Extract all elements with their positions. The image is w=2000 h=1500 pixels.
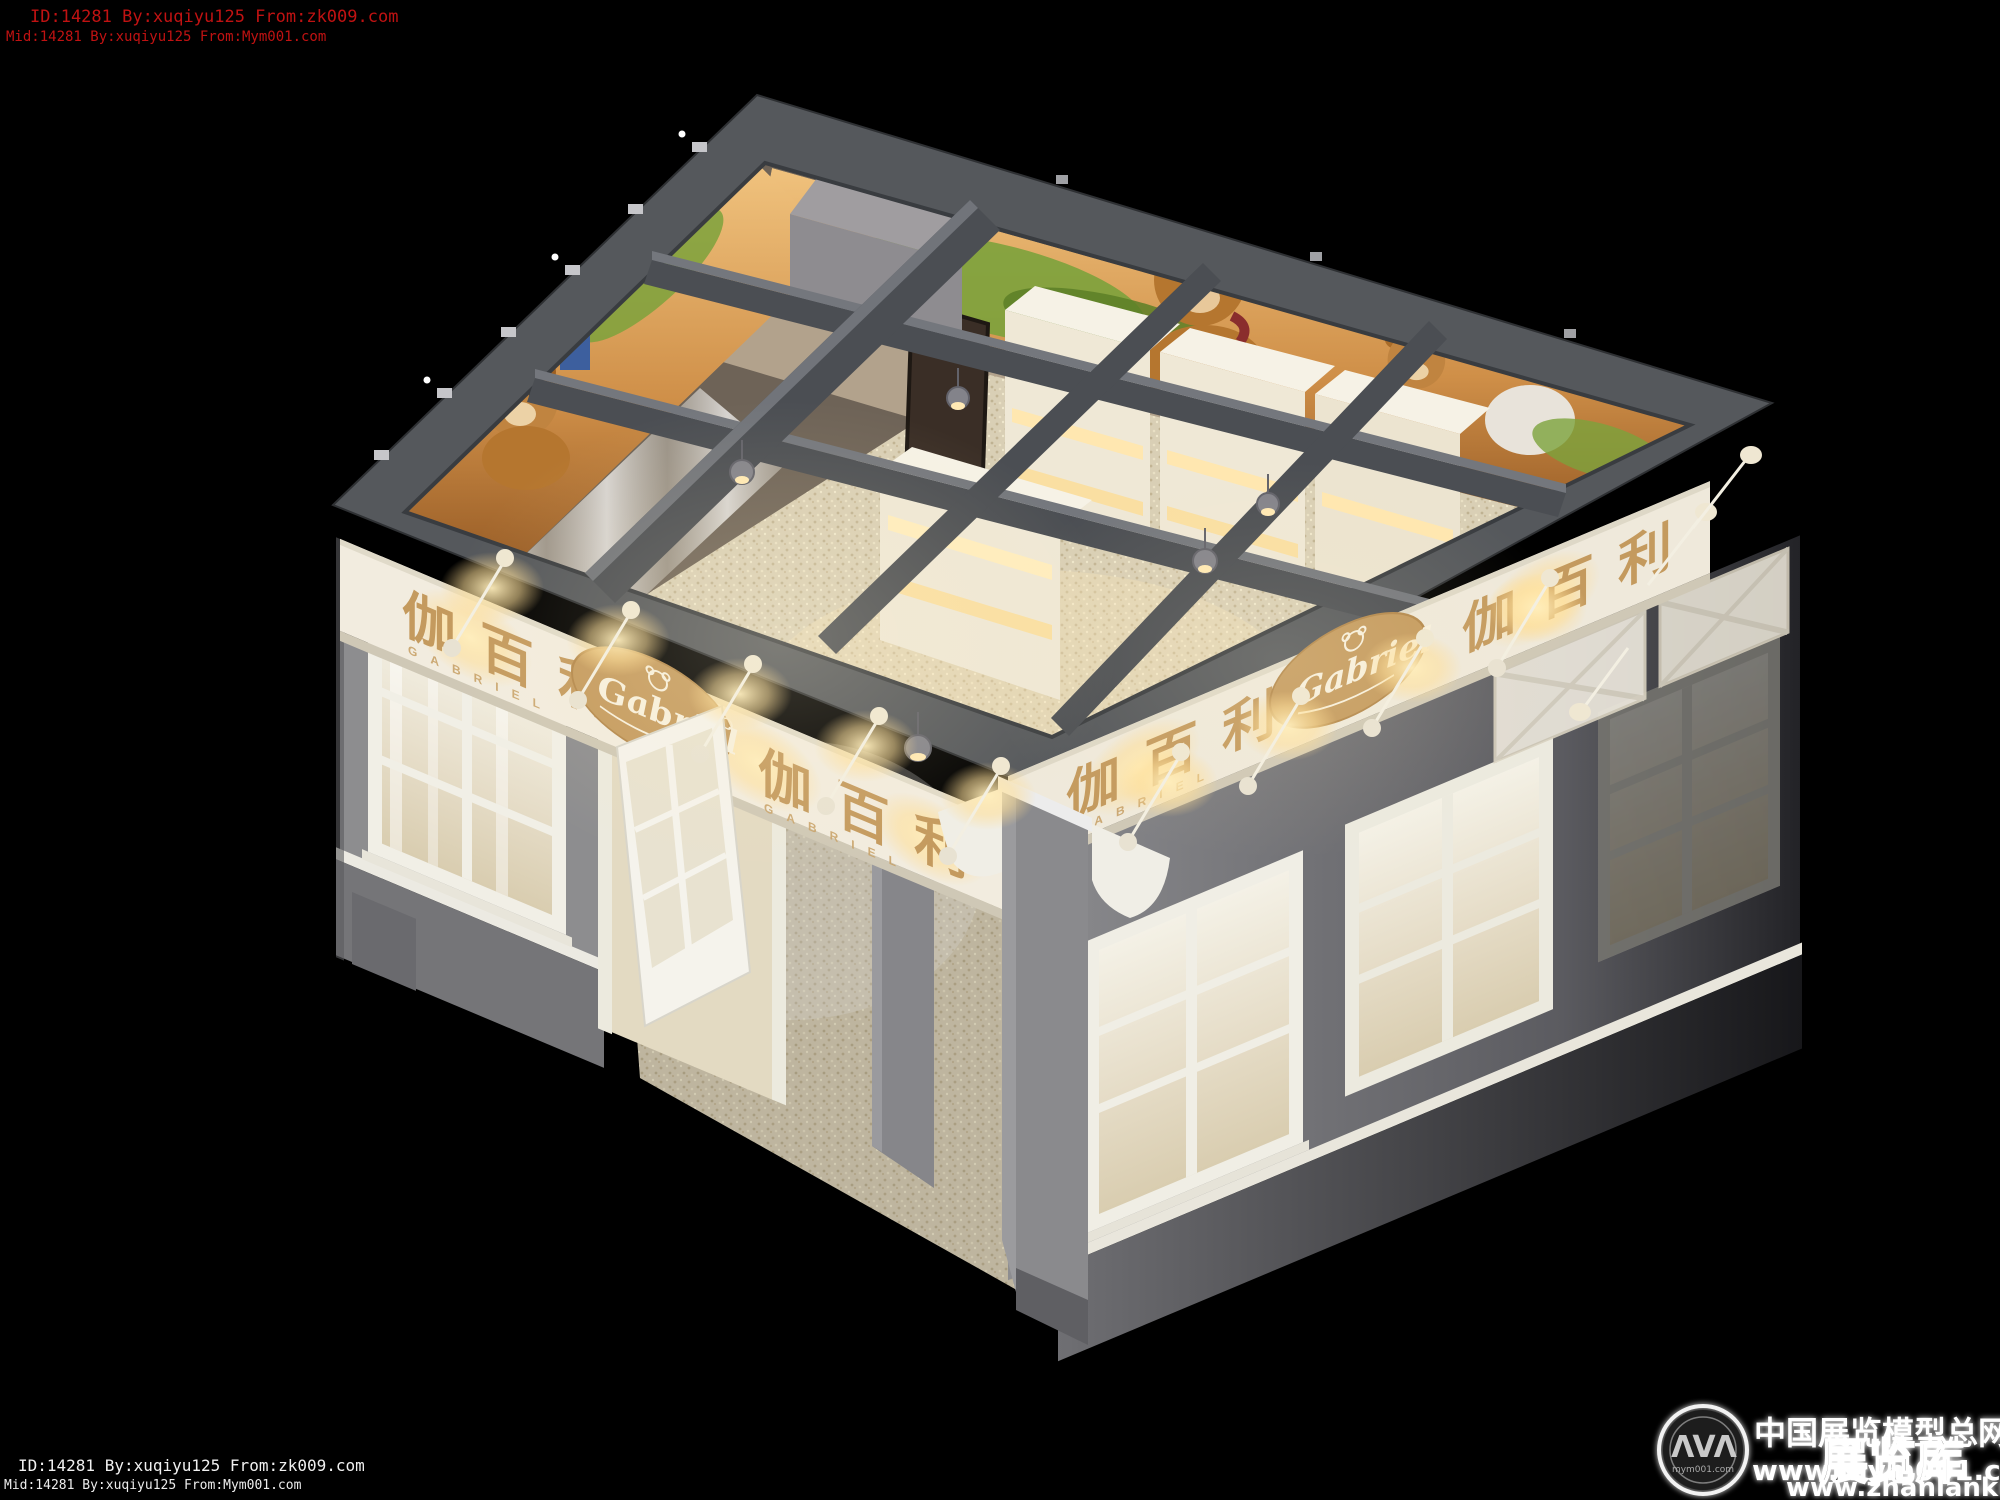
rim-lamp [424,377,431,384]
window-mullion [1186,909,1197,1178]
zhanlanku-watermark: ΛVΛ mym001.com 中国展览模型总网 www.mym001.com 展… [1659,1406,2000,1500]
mym-logo-badge: ΛVΛ mym001.com [1659,1406,1747,1494]
window-mullion [1442,793,1453,1042]
store-3d-render: 伽百利 GABRIEL Gabriel 伽百利 GABRIEL [0,0,2000,1500]
ambient-glow [980,460,1580,860]
render-canvas: 伽百利 GABRIEL Gabriel 伽百利 GABRIEL [0,0,2000,1500]
watermark-bottom-left-line2: Mid:14281 By:xuqiyu125 From:Mym001.com [4,1479,301,1492]
watermark-top-left-line1: ID:14281 By:xuqiyu125 From:zk009.com [30,9,398,26]
mym-logo-glyph: ΛVΛ [1671,1430,1737,1465]
mym-badge-url: mym001.com [1672,1465,1734,1475]
rim-lamp [679,131,686,138]
watermark-url-zhanlanku: www.zhanlanku.com [1786,1473,2000,1500]
rim-lamp [552,254,559,261]
watermark-bottom-left-line1: ID:14281 By:xuqiyu125 From:zk009.com [18,1458,365,1474]
watermark-top-left-line2: Mid:14281 By:xuqiyu125 From:Mym001.com [6,30,326,44]
